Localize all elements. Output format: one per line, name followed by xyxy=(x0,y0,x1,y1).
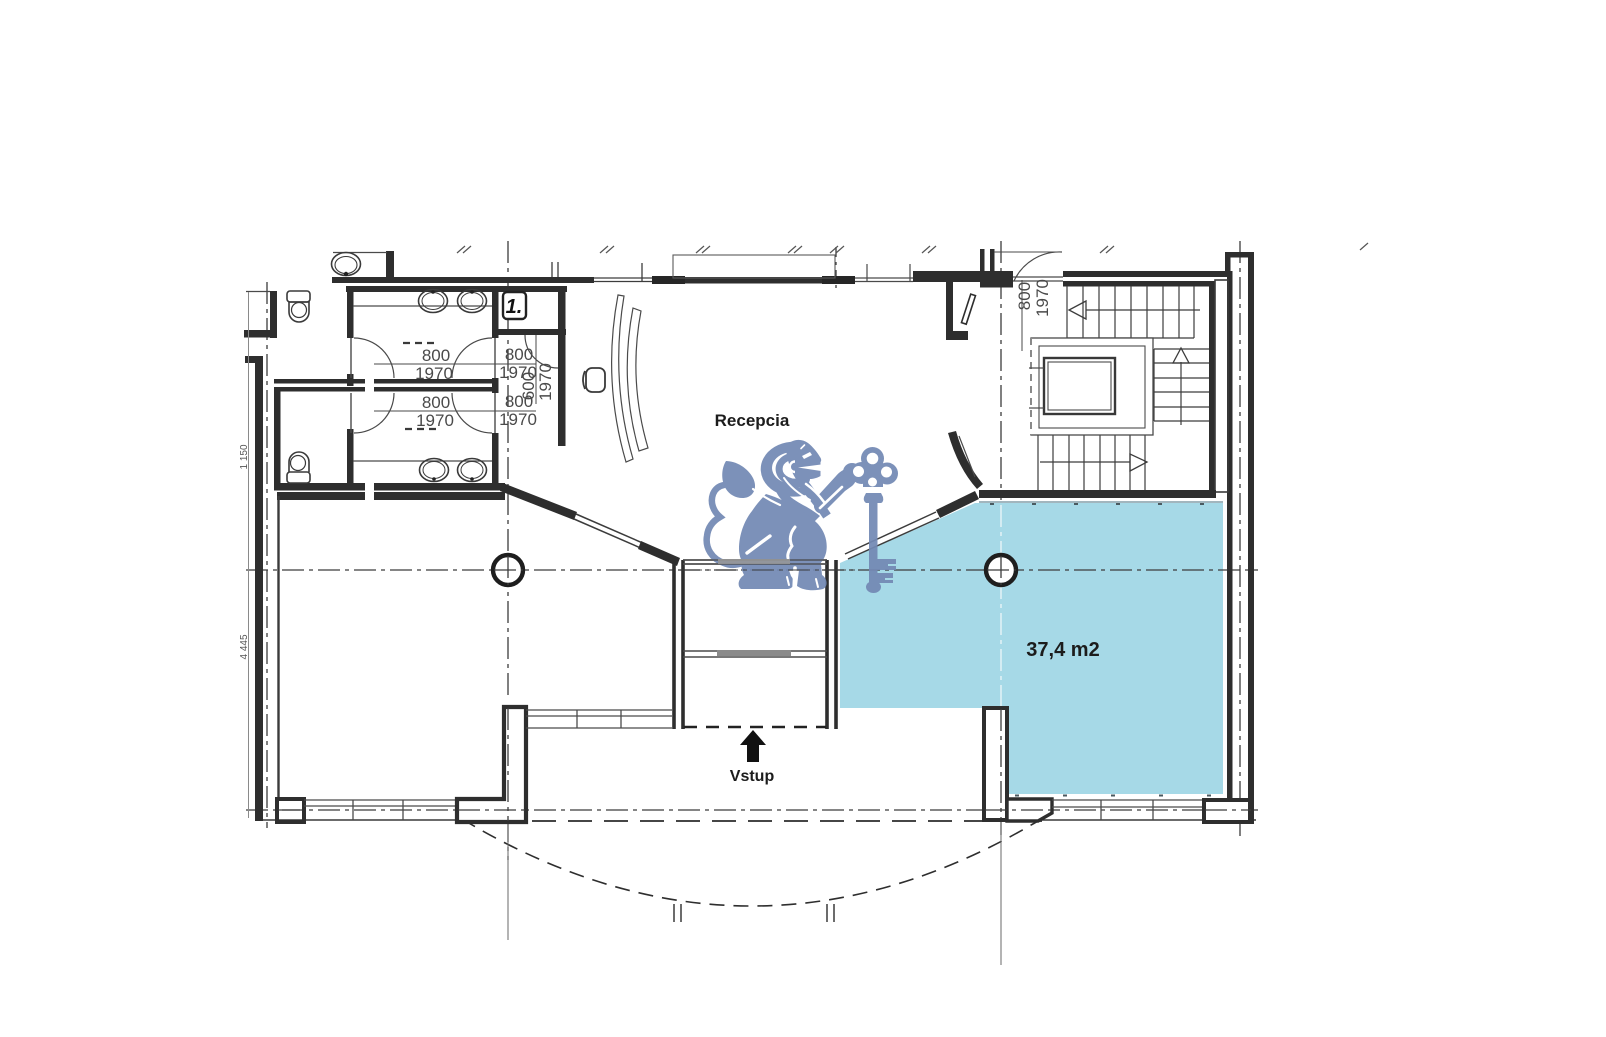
svg-text:37,4 m2: 37,4 m2 xyxy=(1026,639,1099,661)
svg-text:Recepcia: Recepcia xyxy=(715,411,790,430)
svg-text:1970: 1970 xyxy=(499,410,537,429)
svg-text:1 150: 1 150 xyxy=(239,444,250,469)
svg-text:800: 800 xyxy=(505,345,533,364)
svg-text:1970: 1970 xyxy=(1033,279,1052,317)
svg-text:Vstup: Vstup xyxy=(730,768,775,785)
svg-text:1970: 1970 xyxy=(415,364,453,383)
svg-text:800: 800 xyxy=(1015,282,1034,310)
svg-text:4 445: 4 445 xyxy=(239,634,250,659)
svg-text:1.: 1. xyxy=(506,296,523,318)
svg-text:1970: 1970 xyxy=(416,411,454,430)
svg-text:800: 800 xyxy=(422,393,450,412)
svg-text:800: 800 xyxy=(422,346,450,365)
svg-text:1970: 1970 xyxy=(536,363,555,401)
